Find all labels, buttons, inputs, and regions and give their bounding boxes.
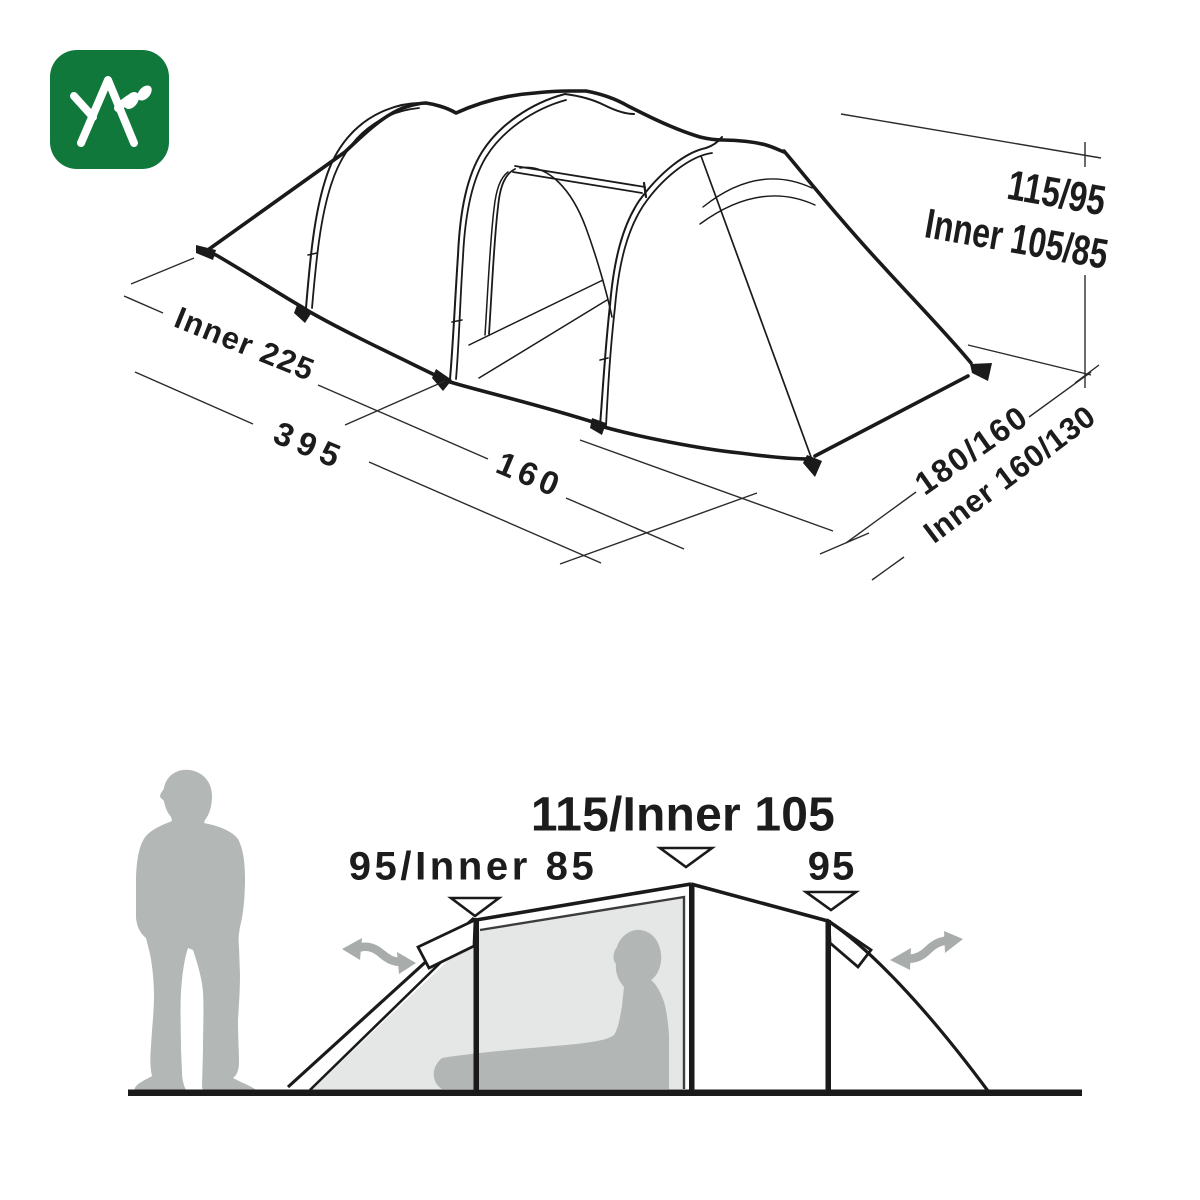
svg-text:95: 95 xyxy=(808,845,857,889)
svg-text:95/Inner 85: 95/Inner 85 xyxy=(349,845,598,889)
svg-text:115/Inner 105: 115/Inner 105 xyxy=(531,789,835,842)
